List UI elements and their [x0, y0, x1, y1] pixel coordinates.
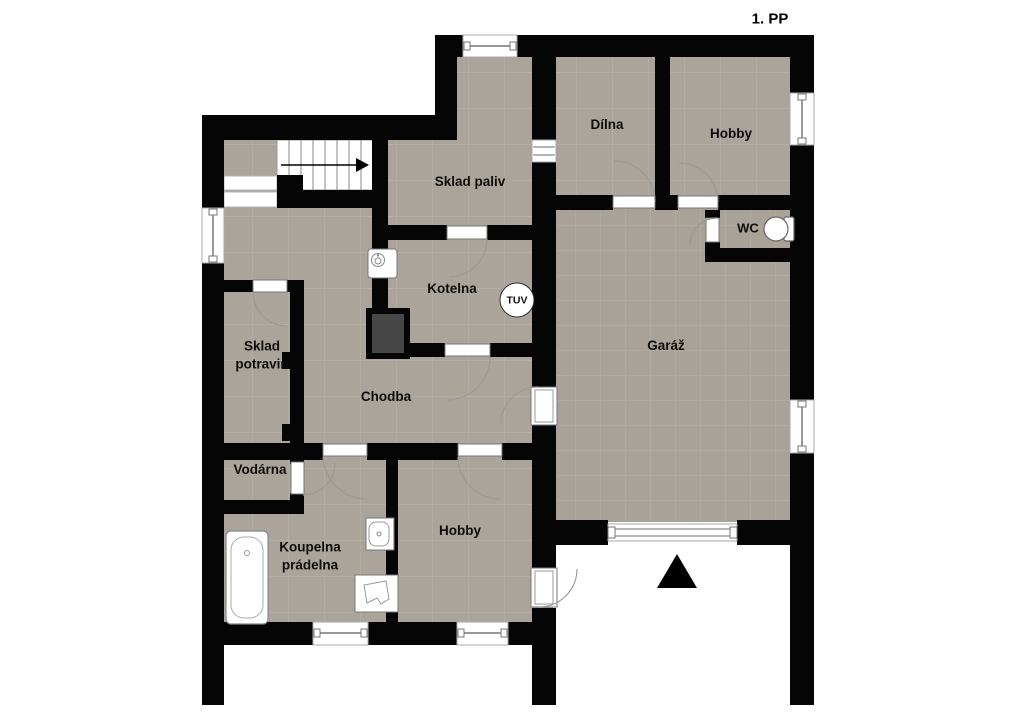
bathtub-icon [226, 531, 268, 624]
floorplan-canvas: 1. PP Dílna Hobby WC Sklad paliv Kotelna… [0, 0, 1024, 723]
tuv-water-heater-badge: TUV [500, 283, 535, 318]
window [790, 93, 814, 145]
garage-door-icon [608, 524, 737, 541]
room-label-garaz: Garáž [647, 337, 685, 355]
room-label-vodarna: Vodárna [233, 461, 286, 479]
room-label-chodba: Chodba [361, 388, 411, 406]
utility-sink-icon [355, 575, 398, 612]
window [457, 622, 508, 645]
room-label-wc: WC [737, 221, 759, 238]
toilet-icon [764, 217, 794, 241]
chimney-icon [366, 308, 410, 359]
tuv-label: TUV [507, 294, 528, 306]
room-label-hobby-top: Hobby [710, 125, 752, 143]
washbasin-icon [366, 518, 394, 550]
floorplan-drawing [0, 0, 1024, 723]
room-label-kotelna: Kotelna [427, 280, 477, 298]
room-label-dilna: Dílna [590, 116, 623, 134]
room-label-hobby-bottom: Hobby [439, 522, 481, 540]
window [202, 208, 224, 263]
room-label-sklad-potravin: Sklad potravin [220, 337, 304, 372]
boiler-icon [368, 249, 397, 278]
room-label-koupelna: Koupelna prádelna [264, 538, 356, 573]
window [790, 400, 814, 453]
window [313, 622, 368, 645]
door [531, 568, 577, 607]
entrance-arrow-icon [657, 554, 697, 588]
understair-niche [224, 176, 277, 207]
room-label-sklad-paliv: Sklad paliv [435, 173, 506, 191]
window [463, 35, 517, 57]
vent-louver [532, 140, 556, 162]
floor-title: 1. PP [752, 11, 789, 28]
